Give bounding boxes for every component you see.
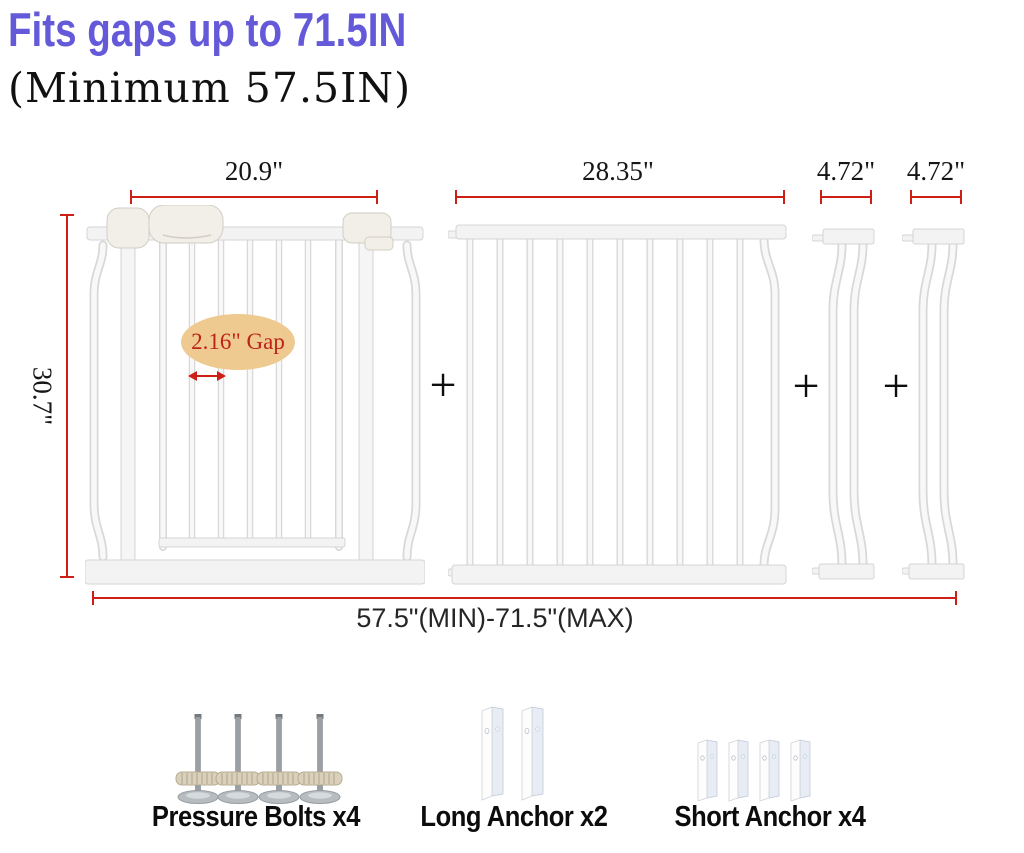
- pressure-bolt-icon: [168, 714, 358, 806]
- extension-top-rail: [456, 225, 786, 239]
- plus-sign-3: +: [882, 359, 909, 414]
- extension-panel-4-72in-1: [812, 225, 876, 587]
- gate-width-measure-line: [130, 196, 378, 198]
- short-anchor-icon: [684, 738, 834, 804]
- long-anchor-icon: [466, 704, 576, 806]
- total-range-measure-line: [92, 597, 957, 599]
- gate-hinge-post: [121, 235, 135, 563]
- extension-panel-width-label: 28.35": [582, 156, 654, 187]
- hinge-cap: [107, 208, 149, 248]
- gate-latch-post: [359, 235, 373, 563]
- extension-panel-measure-line: [455, 196, 785, 198]
- small-extension-2-measure-line: [910, 196, 962, 198]
- door-bottom-rail: [159, 538, 345, 547]
- plus-sign-2: +: [792, 359, 819, 414]
- gate-bottom-rail: [85, 560, 425, 584]
- extension-panel-28in: [448, 218, 790, 590]
- bar-gap-label: 2.16" Gap: [191, 329, 285, 355]
- extension-panel-4-72in-2: [902, 225, 966, 587]
- bar-gap-arrow: [188, 371, 226, 381]
- gate-height-measure-line: [66, 214, 68, 578]
- small-extension-1-width-label: 4.72": [817, 156, 875, 187]
- bar-gap-callout: 2.16" Gap: [181, 314, 295, 370]
- short-anchor-label: Short Anchor x4: [675, 801, 866, 834]
- main-gate-panel: [85, 205, 425, 590]
- gate-width-label: 20.9": [225, 156, 283, 187]
- long-anchor-label: Long Anchor x2: [420, 801, 607, 834]
- extension-bottom-rail: [452, 565, 786, 584]
- plus-sign-1: +: [429, 358, 456, 413]
- page-subtitle: (Minimum 57.5IN): [8, 64, 411, 112]
- pressure-bolts-label: Pressure Bolts x4: [152, 801, 360, 834]
- product-diagram: Fits gaps up to 71.5IN (Minimum 57.5IN) …: [0, 0, 1024, 853]
- small-extension-1-measure-line: [820, 196, 872, 198]
- small-extension-2-width-label: 4.72": [907, 156, 965, 187]
- page-title: Fits gaps up to 71.5IN: [8, 2, 406, 57]
- gate-height-label: 30.7": [27, 367, 58, 425]
- total-range-label: 57.5"(MIN)-71.5"(MAX): [356, 603, 633, 634]
